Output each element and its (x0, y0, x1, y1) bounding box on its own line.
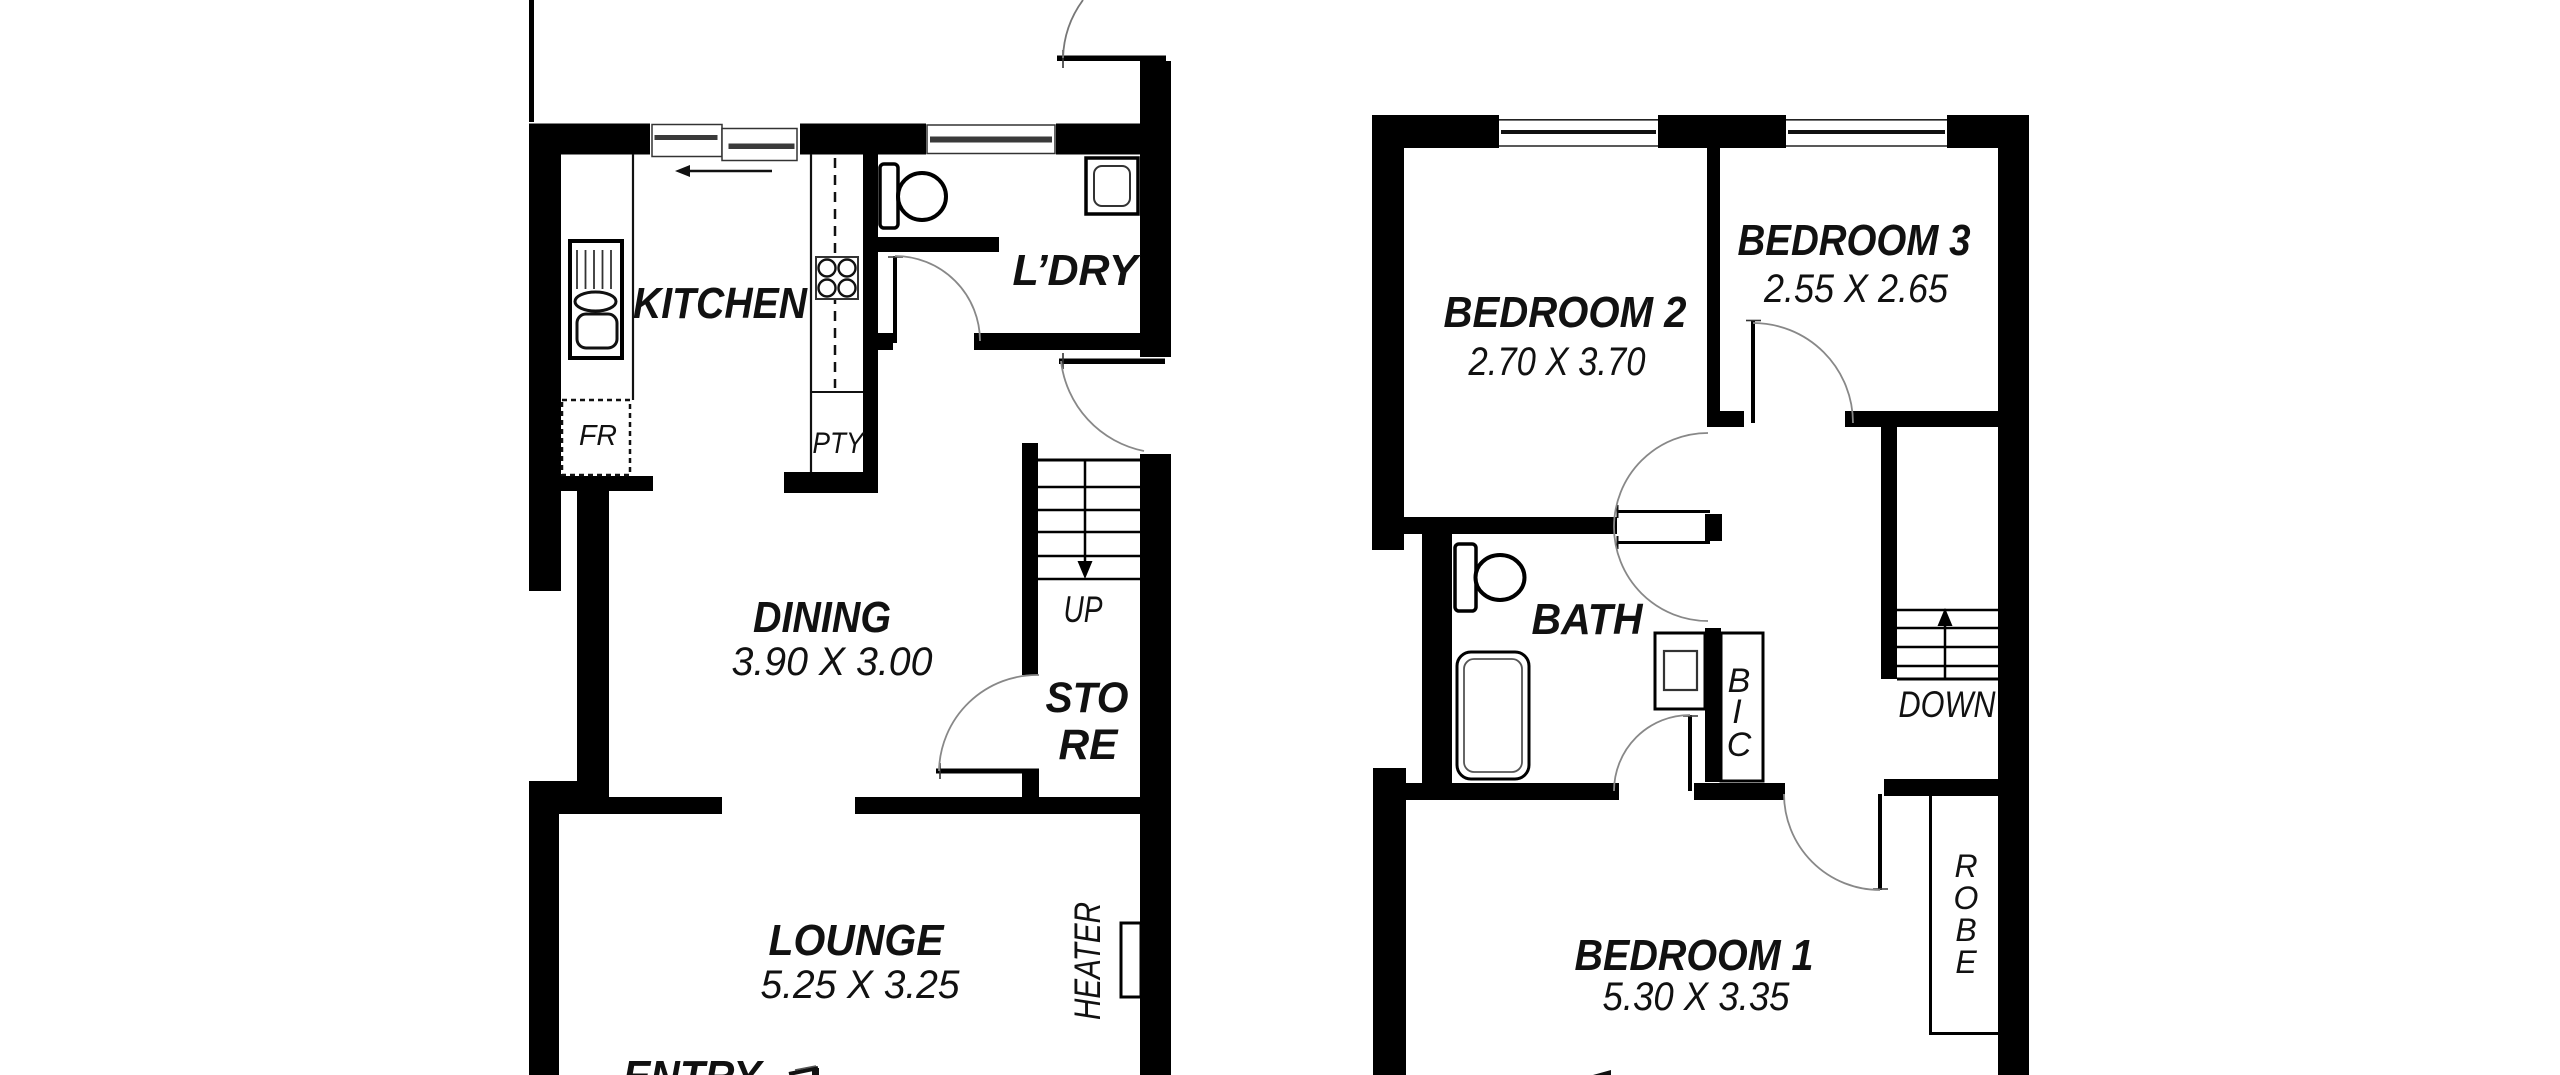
svg-text:5.30 X 3.35: 5.30 X 3.35 (1603, 975, 1791, 1019)
svg-text:RE: RE (1059, 721, 1119, 769)
svg-text:DOWN: DOWN (1899, 684, 1996, 725)
svg-text:KITCHEN: KITCHEN (633, 279, 808, 328)
svg-text:DINING: DINING (753, 593, 891, 642)
svg-text:LOUNGE: LOUNGE (769, 916, 946, 965)
svg-text:R: R (1954, 848, 1977, 884)
svg-text:BEDROOM 2: BEDROOM 2 (1444, 288, 1687, 337)
svg-text:BEDROOM 3: BEDROOM 3 (1738, 216, 1971, 265)
svg-text:E: E (1955, 944, 1977, 980)
svg-text:L’DRY: L’DRY (1013, 246, 1142, 295)
svg-text:2.70 X 3.70: 2.70 X 3.70 (1468, 340, 1646, 384)
svg-text:FR: FR (579, 420, 617, 452)
svg-text:ENTRY: ENTRY (623, 1052, 764, 1075)
svg-text:5.25 X 3.25: 5.25 X 3.25 (761, 963, 961, 1007)
svg-text:UP: UP (1064, 589, 1103, 630)
svg-text:3.90 X 3.00: 3.90 X 3.00 (732, 640, 933, 684)
svg-text:O: O (1954, 880, 1979, 916)
svg-text:BATH: BATH (1532, 595, 1644, 644)
svg-text:C: C (1727, 726, 1752, 764)
svg-text:PTY: PTY (813, 427, 866, 460)
svg-text:BEDROOM 1: BEDROOM 1 (1575, 931, 1814, 980)
svg-text:STO: STO (1046, 674, 1129, 722)
svg-text:HEATER: HEATER (1067, 902, 1108, 1020)
svg-text:B: B (1955, 912, 1976, 948)
svg-text:2.55 X 2.65: 2.55 X 2.65 (1763, 267, 1949, 311)
